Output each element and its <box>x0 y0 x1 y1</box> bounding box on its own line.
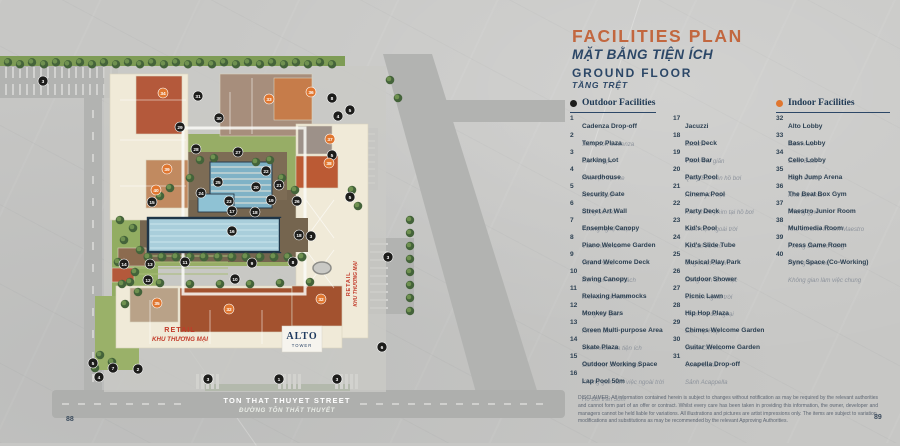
facility-name-vi: Sảnh Acappella <box>685 379 727 386</box>
indoor-marker-33: 33 <box>264 94 274 104</box>
facility-number: 27 <box>673 285 682 292</box>
floor-label: GROUND FLOOR <box>572 66 692 80</box>
svg-text:18: 18 <box>252 210 258 216</box>
indoor-header-label: Indoor Facilities <box>788 98 855 108</box>
indoor-item-38: 38Multimedia RoomPhòng đa chức năng <box>776 217 894 234</box>
outdoor-item-9: 9Grand Welcome DeckĐại sảnh đón khách <box>570 251 673 268</box>
svg-text:11: 11 <box>182 260 187 266</box>
lap-pool <box>148 218 280 252</box>
outdoor-marker-4: 4 <box>333 111 343 121</box>
svg-text:3: 3 <box>42 79 45 85</box>
facility-number: 8 <box>570 234 579 241</box>
facility-name: Outdoor Shower <box>685 276 737 283</box>
tree-icon <box>316 58 324 66</box>
svg-text:18: 18 <box>296 233 302 239</box>
outdoor-marker-3: 3 <box>332 374 342 384</box>
tree-icon <box>131 268 140 277</box>
facility-name: Pool Bar <box>685 157 712 164</box>
tree-icon <box>16 60 24 68</box>
indoor-item-37: 37Maestro Junior RoomKhu vui chơi trẻ em… <box>776 200 894 217</box>
svg-text:28: 28 <box>193 147 199 153</box>
svg-text:25: 25 <box>215 180 221 186</box>
outdoor-marker-3: 3 <box>383 252 393 262</box>
tree-icon <box>256 60 264 68</box>
facility-number: 18 <box>673 132 682 139</box>
facility-name: Multimedia Room <box>788 225 843 232</box>
tree-icon <box>406 242 414 250</box>
spiral-feature <box>313 262 331 274</box>
outdoor-item-10: 10Swing CanopyXích đu sân vườn <box>570 268 673 285</box>
svg-text:10: 10 <box>232 277 238 283</box>
tree-icon <box>208 60 216 68</box>
svg-text:7: 7 <box>112 366 115 372</box>
outdoor-marker-15: 15 <box>147 197 157 207</box>
indoor-legend-dot <box>776 100 783 107</box>
svg-text:31: 31 <box>195 94 201 100</box>
svg-text:36: 36 <box>308 90 314 96</box>
outdoor-marker-2: 2 <box>133 364 143 374</box>
facility-number: 29 <box>673 319 682 326</box>
facility-number: 9 <box>570 251 579 258</box>
svg-text:37: 37 <box>327 137 333 143</box>
facility-name: Skate Plaza <box>582 344 618 351</box>
tree-icon <box>126 278 135 287</box>
outdoor-marker-8: 8 <box>288 257 298 267</box>
tree-icon <box>214 253 223 262</box>
facility-name: Kid's Pool <box>685 225 717 232</box>
facility-number: 15 <box>570 353 579 360</box>
outdoor-legend-dot <box>570 100 577 107</box>
tree-icon <box>276 279 285 288</box>
tree-icon <box>196 58 204 66</box>
outdoor-item-7: 7Ensemble CanopyVòm thanh âm <box>570 217 673 234</box>
facility-name: Green Multi-purpose Area <box>582 327 663 334</box>
tree-icon <box>270 253 279 262</box>
svg-text:32: 32 <box>226 307 232 313</box>
facility-name: Jacuzzi <box>685 123 708 130</box>
tree-icon <box>40 60 48 68</box>
indoor-marker-35: 35 <box>152 298 162 308</box>
svg-text:5: 5 <box>331 153 334 159</box>
indoor-item-33: 33Bass LobbySảnh Bass <box>776 132 894 149</box>
outdoor-item-24: 24Kid's Slide TubeỐng trượt trẻ em <box>673 234 776 251</box>
tree-icon <box>116 216 125 225</box>
tree-icon <box>28 58 36 66</box>
facility-number: 23 <box>673 217 682 224</box>
legend-panel: FACILITIES PLAN MẶT BẰNG TIỆN ÍCH GROUND… <box>570 0 896 443</box>
outdoor-marker-12: 12 <box>143 275 153 285</box>
tree-icon <box>129 224 138 233</box>
facility-name: Maestro Junior Room <box>788 208 856 215</box>
page-number-right: 89 <box>874 414 882 421</box>
facility-name: Musical Play Park <box>685 259 741 266</box>
outdoor-marker-31: 31 <box>193 91 203 101</box>
facility-number: 38 <box>776 217 785 224</box>
facility-name: Grand Welcome Deck <box>582 259 650 266</box>
svg-text:6: 6 <box>381 345 384 351</box>
tree-icon <box>291 186 300 195</box>
tree-icon <box>232 60 240 68</box>
facility-number: 39 <box>776 234 785 241</box>
indoor-marker-39: 39 <box>162 164 172 174</box>
outdoor-item-31: 31Acapella Drop-offSảnh Acappella <box>673 353 776 370</box>
tree-icon <box>256 253 265 262</box>
outdoor-marker-5: 5 <box>345 192 355 202</box>
indoor-facilities-header: Indoor Facilities <box>776 98 890 113</box>
outdoor-marker-28: 28 <box>191 144 201 154</box>
indoor-marker-34: 34 <box>158 88 168 98</box>
tree-icon <box>210 154 219 163</box>
facility-name: Sync Space (Co-Working) <box>788 259 868 266</box>
outdoor-marker-6: 6 <box>377 342 387 352</box>
outdoor-marker-5: 5 <box>88 358 98 368</box>
tree-icon <box>406 307 414 315</box>
facility-number: 21 <box>673 183 682 190</box>
outdoor-item-28: 28Hip Hop PlazaSân Hip Hop <box>673 302 776 319</box>
facility-name: Alto Lobby <box>788 123 822 130</box>
facility-number: 6 <box>570 200 579 207</box>
indoor-item-34: 34Cello LobbySảnh Cello <box>776 149 894 166</box>
tree-icon <box>246 280 255 289</box>
outdoor-marker-10: 10 <box>230 274 240 284</box>
floor-label-vi: TẦNG TRỆT <box>572 80 628 90</box>
facility-number: 7 <box>570 217 579 224</box>
outdoor-marker-23: 23 <box>224 196 234 206</box>
outdoor-marker-25: 25 <box>213 177 223 187</box>
facility-name-vi: Không gian làm việc chung <box>788 277 861 284</box>
svg-text:8: 8 <box>292 260 295 266</box>
facility-number: 5 <box>570 183 579 190</box>
svg-text:26: 26 <box>294 199 300 205</box>
facility-number: 40 <box>776 251 785 258</box>
tree-icon <box>386 76 395 85</box>
facility-name: Guitar Welcome Garden <box>685 344 760 351</box>
tree-icon <box>120 236 129 245</box>
svg-text:3: 3 <box>387 255 390 261</box>
outdoor-item-25: 25Musical Play ParkCông viên âm nhạc <box>673 251 776 268</box>
tree-icon <box>134 288 143 297</box>
facility-number: 19 <box>673 149 682 156</box>
svg-text:8: 8 <box>331 96 334 102</box>
page-number-left: 88 <box>66 416 74 423</box>
facility-name: The Beat Box Gym <box>788 191 847 198</box>
outdoor-marker-21: 21 <box>274 180 284 190</box>
outdoor-facilities-header: Outdoor Facilities <box>570 98 656 113</box>
facility-name: Acapella Drop-off <box>685 361 740 368</box>
outdoor-marker-22: 22 <box>261 166 271 176</box>
svg-text:16: 16 <box>229 229 235 235</box>
outdoor-item-11: 11Relaxing HammocksVõng thư giãn <box>570 285 673 302</box>
tree-icon <box>118 280 127 289</box>
tree-icon <box>304 60 312 68</box>
facility-number: 11 <box>570 285 579 292</box>
svg-text:12: 12 <box>145 278 151 284</box>
tree-icon <box>406 268 414 276</box>
facility-number: 31 <box>673 353 682 360</box>
outdoor-item-21: 21Cinema PoolKhu chiếu phim tại hồ bơi <box>673 183 776 200</box>
svg-text:2: 2 <box>137 367 140 373</box>
tree-icon <box>186 280 195 289</box>
outdoor-item-13: 13Green Multi-purpose AreaVườn xanh đa t… <box>570 319 673 336</box>
outdoor-item-19: 19Pool BarQuầy Bar bên hồ bơi <box>673 149 776 166</box>
tree-icon <box>4 58 12 66</box>
retail-right-label: RETAIL <box>346 272 352 297</box>
facility-number: 33 <box>776 132 785 139</box>
outdoor-marker-1: 1 <box>274 374 284 384</box>
svg-text:34: 34 <box>160 91 166 97</box>
outdoor-header-label: Outdoor Facilities <box>582 98 655 108</box>
tree-icon <box>328 60 336 68</box>
facility-name: Swing Canopy <box>582 276 627 283</box>
svg-text:39: 39 <box>164 167 170 173</box>
indoor-item-39: 39Press Game RoomPhòng trò chơi <box>776 234 894 251</box>
outdoor-marker-24: 24 <box>196 188 206 198</box>
facility-name: Cello Lobby <box>788 157 826 164</box>
svg-text:5: 5 <box>349 195 352 201</box>
outdoor-marker-19: 19 <box>266 195 276 205</box>
retail-label: RETAIL <box>164 325 195 334</box>
facility-number: 37 <box>776 200 785 207</box>
outdoor-marker-3: 3 <box>203 374 213 384</box>
facility-name: Bass Lobby <box>788 140 825 147</box>
indoor-marker-32: 32 <box>316 294 326 304</box>
svg-text:40: 40 <box>153 188 159 194</box>
roof-orange-2 <box>274 78 312 120</box>
outdoor-marker-13: 13 <box>145 259 155 269</box>
facility-name: Press Game Room <box>788 242 847 249</box>
outdoor-marker-7: 7 <box>108 363 118 373</box>
facility-number: 4 <box>570 166 579 173</box>
tree-icon <box>220 58 228 66</box>
outdoor-marker-30: 30 <box>214 113 224 123</box>
outdoor-facilities-column-2: 17JacuzziJacuzzi18Pool DeckThềm thư giãn… <box>673 115 776 370</box>
tree-icon <box>166 184 175 193</box>
tree-icon <box>406 229 414 237</box>
street-name-vi: ĐƯỜNG TÔN THẤT THUYẾT <box>239 406 336 414</box>
tree-icon <box>156 279 165 288</box>
facility-number: 35 <box>776 166 785 173</box>
outdoor-marker-27: 27 <box>233 147 243 157</box>
retail-label-vi: KHU THƯƠNG MẠI <box>152 336 208 343</box>
facility-name: Party Pool <box>685 174 718 181</box>
tree-icon <box>354 202 363 211</box>
indoor-marker-40: 40 <box>151 185 161 195</box>
tree-icon <box>280 60 288 68</box>
facility-number: 36 <box>776 183 785 190</box>
facility-number: 1 <box>570 115 579 122</box>
disclaimer-text: DISCLAIMER: All information contained he… <box>578 395 878 426</box>
svg-text:13: 13 <box>147 262 153 268</box>
tree-icon <box>158 253 167 262</box>
tree-icon <box>268 58 276 66</box>
facility-name: Piano Welcome Garden <box>582 242 656 249</box>
tree-icon <box>186 174 195 183</box>
svg-text:15: 15 <box>149 200 155 206</box>
outdoor-item-15: 15Outdoor Working SpaceKhông gian làm vi… <box>570 353 673 370</box>
outdoor-item-17: 17JacuzziJacuzzi <box>673 115 776 132</box>
svg-text:22: 22 <box>263 169 269 175</box>
facility-name: Lap Pool 50m <box>582 378 625 385</box>
tree-icon <box>292 58 300 66</box>
outdoor-marker-26: 26 <box>292 196 302 206</box>
svg-text:29: 29 <box>177 125 183 131</box>
facility-number: 17 <box>673 115 682 122</box>
tree-icon <box>196 156 205 165</box>
tree-icon <box>100 58 108 66</box>
tree-icon <box>52 58 60 66</box>
svg-text:27: 27 <box>235 150 241 156</box>
tree-icon <box>406 216 414 224</box>
outdoor-marker-18: 18 <box>250 207 260 217</box>
tree-icon <box>124 58 132 66</box>
svg-text:23: 23 <box>226 199 232 205</box>
outdoor-item-29: 29Chimes Welcome GardenVườn Chimes <box>673 319 776 336</box>
tree-icon <box>112 60 120 68</box>
indoor-marker-36: 36 <box>306 87 316 97</box>
outdoor-facilities-column-1: 1Cadenza Drop-offSảnh đón Cadenza2Tempo … <box>570 115 673 387</box>
facility-number: 24 <box>673 234 682 241</box>
svg-text:32: 32 <box>318 297 324 303</box>
facility-name: Cadenza Drop-off <box>582 123 637 130</box>
outdoor-marker-14: 14 <box>119 259 129 269</box>
tree-icon <box>406 294 414 302</box>
svg-text:33: 33 <box>266 97 272 103</box>
facility-name: Cinema Pool <box>685 191 725 198</box>
indoor-item-40: 40Sync Space (Co-Working)Không gian làm … <box>776 251 894 268</box>
facility-name: Relaxing Hammocks <box>582 293 647 300</box>
tree-icon <box>216 280 225 289</box>
facility-name: Guardhouse <box>582 174 621 181</box>
tree-icon <box>148 58 156 66</box>
tree-icon <box>184 60 192 68</box>
outdoor-marker-5: 5 <box>345 105 355 115</box>
svg-text:19: 19 <box>268 198 274 204</box>
svg-text:4: 4 <box>337 114 340 120</box>
outdoor-item-2: 2Tempo PlazaSân Tempo <box>570 132 673 149</box>
page-title-vi: MẶT BẰNG TIỆN ÍCH <box>572 47 713 62</box>
outdoor-item-1: 1Cadenza Drop-offSảnh đón Cadenza <box>570 115 673 132</box>
indoor-item-32: 32Alto LobbySảnh Alto <box>776 115 894 132</box>
outdoor-item-3: 3Parking LotKhu vực đậu xe <box>570 149 673 166</box>
svg-text:35: 35 <box>154 301 160 307</box>
facility-name: Chimes Welcome Garden <box>685 327 764 334</box>
facility-number: 26 <box>673 268 682 275</box>
outdoor-item-26: 26Outdoor ShowerVòi sen ngoài trời <box>673 268 776 285</box>
tree-icon <box>136 246 145 255</box>
roof-sienna-2 <box>292 286 342 326</box>
tree-icon <box>266 156 275 165</box>
facility-name: Tempo Plaza <box>582 140 622 147</box>
facility-name: Kid's Slide Tube <box>685 242 736 249</box>
indoor-marker-32: 32 <box>224 304 234 314</box>
outdoor-marker-3: 3 <box>38 76 48 86</box>
tree-icon <box>88 60 96 68</box>
tree-icon <box>406 281 414 289</box>
indoor-item-35: 35High Jump ArenaNhà bật nhún <box>776 166 894 183</box>
facility-number: 3 <box>570 149 579 156</box>
outdoor-marker-11: 11 <box>180 257 190 267</box>
svg-text:9: 9 <box>251 261 254 267</box>
indoor-marker-37: 37 <box>325 134 335 144</box>
tree-icon <box>172 58 180 66</box>
facility-name: Monkey Bars <box>582 310 623 317</box>
alto-tower-name: ALTO <box>286 331 317 342</box>
outdoor-item-8: 8Piano Welcome GardenVườn Piano <box>570 234 673 251</box>
tree-icon <box>172 253 181 262</box>
outdoor-item-18: 18Pool DeckThềm thư giãn <box>673 132 776 149</box>
facility-number: 30 <box>673 336 682 343</box>
facility-number: 13 <box>570 319 579 326</box>
facility-number: 34 <box>776 149 785 156</box>
facility-name: High Jump Arena <box>788 174 842 181</box>
tree-icon <box>96 351 105 360</box>
outdoor-item-20: 20Party PoolHồ bơi yến tiệc <box>673 166 776 183</box>
outdoor-item-5: 5Security GateCổng an ninh <box>570 183 673 200</box>
facility-name: Security Gate <box>582 191 625 198</box>
tree-icon <box>121 300 130 309</box>
outdoor-marker-4: 4 <box>94 372 104 382</box>
outdoor-item-12: 12Monkey BarsKhu xà đơn <box>570 302 673 319</box>
retail-right-label-vi: KHU THƯƠNG MẠI <box>353 261 359 307</box>
tree-icon <box>406 255 414 263</box>
facility-name: Pool Deck <box>685 140 717 147</box>
outdoor-marker-8: 8 <box>327 93 337 103</box>
tree-icon <box>244 58 252 66</box>
facility-number: 14 <box>570 336 579 343</box>
outdoor-item-22: 22Party DeckSảnh tiệc ngoài trời <box>673 200 776 217</box>
svg-text:20: 20 <box>253 185 259 191</box>
outdoor-marker-29: 29 <box>175 122 185 132</box>
facility-number: 10 <box>570 268 579 275</box>
facility-number: 2 <box>570 132 579 139</box>
site-plan-map: TON THAT THUYET STREET ĐƯỜNG TÔN THẤT TH… <box>0 0 565 443</box>
facility-name: Parking Lot <box>582 157 618 164</box>
tree-icon <box>394 94 403 103</box>
tree-icon <box>64 60 72 68</box>
svg-text:5: 5 <box>92 361 95 367</box>
tree-icon <box>200 253 209 262</box>
outdoor-marker-3: 3 <box>306 231 316 241</box>
facility-number: 20 <box>673 166 682 173</box>
facility-name: Ensemble Canopy <box>582 225 639 232</box>
outdoor-marker-16: 16 <box>227 226 237 236</box>
tree-icon <box>136 60 144 68</box>
facility-number: 28 <box>673 302 682 309</box>
svg-text:3: 3 <box>336 377 339 383</box>
alto-tower-sub: TOWER <box>292 343 313 348</box>
svg-text:3: 3 <box>207 377 210 383</box>
indoor-facilities-column: 32Alto LobbySảnh Alto33Bass LobbySảnh Ba… <box>776 115 894 268</box>
facility-number: 16 <box>570 370 579 377</box>
tree-icon <box>252 158 261 167</box>
facility-name: Street Art Wall <box>582 208 627 215</box>
svg-text:21: 21 <box>276 183 282 189</box>
facility-number: 25 <box>673 251 682 258</box>
facility-name: Outdoor Working Space <box>582 361 657 368</box>
svg-text:24: 24 <box>198 191 204 197</box>
facility-number: 22 <box>673 200 682 207</box>
svg-text:5: 5 <box>349 108 352 114</box>
tree-icon <box>76 58 84 66</box>
facility-number: 12 <box>570 302 579 309</box>
tree-icon <box>228 253 237 262</box>
outdoor-item-6: 6Street Art WallTường nghệ thuật <box>570 200 673 217</box>
outdoor-marker-20: 20 <box>251 182 261 192</box>
svg-text:17: 17 <box>229 209 235 215</box>
svg-text:4: 4 <box>98 375 101 381</box>
facility-name: Party Deck <box>685 208 719 215</box>
facility-name: Hip Hop Plaza <box>685 310 729 317</box>
